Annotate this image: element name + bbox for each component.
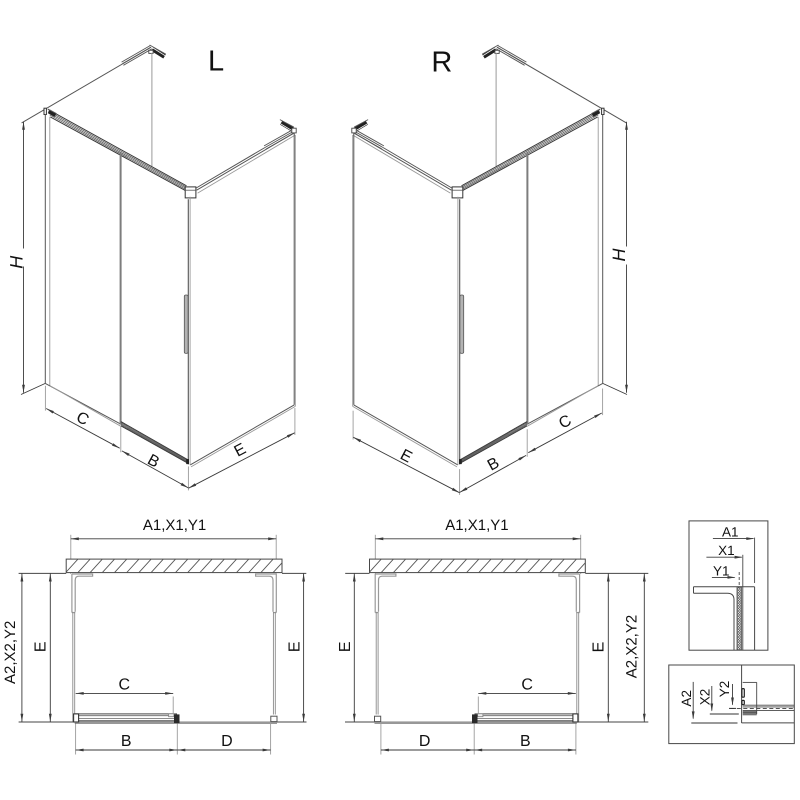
svg-text:C: C (119, 677, 131, 694)
svg-text:D: D (419, 733, 431, 750)
svg-text:B: B (121, 733, 132, 750)
svg-text:B: B (520, 733, 531, 750)
svg-text:A1,X1,Y1: A1,X1,Y1 (445, 517, 508, 534)
svg-text:H: H (6, 255, 26, 269)
svg-text:A2: A2 (679, 690, 694, 707)
svg-text:D: D (221, 733, 233, 750)
svg-text:A2,X2,Y2: A2,X2,Y2 (2, 621, 19, 684)
svg-text:A1: A1 (722, 524, 739, 539)
svg-text:E: E (287, 641, 304, 652)
svg-text:X2: X2 (697, 689, 712, 706)
svg-text:R: R (431, 47, 452, 79)
svg-text:X1: X1 (718, 543, 735, 558)
svg-text:E: E (33, 641, 50, 652)
svg-text:Y2: Y2 (717, 681, 732, 698)
svg-text:E: E (337, 641, 354, 652)
svg-text:A1,X1,Y1: A1,X1,Y1 (143, 517, 206, 534)
svg-text:A2,X2,Y2: A2,X2,Y2 (624, 615, 641, 678)
svg-text:Y1: Y1 (713, 564, 730, 579)
svg-text:H: H (609, 248, 629, 262)
svg-text:C: C (521, 677, 533, 694)
svg-text:L: L (208, 46, 224, 78)
svg-text:E: E (591, 642, 608, 653)
